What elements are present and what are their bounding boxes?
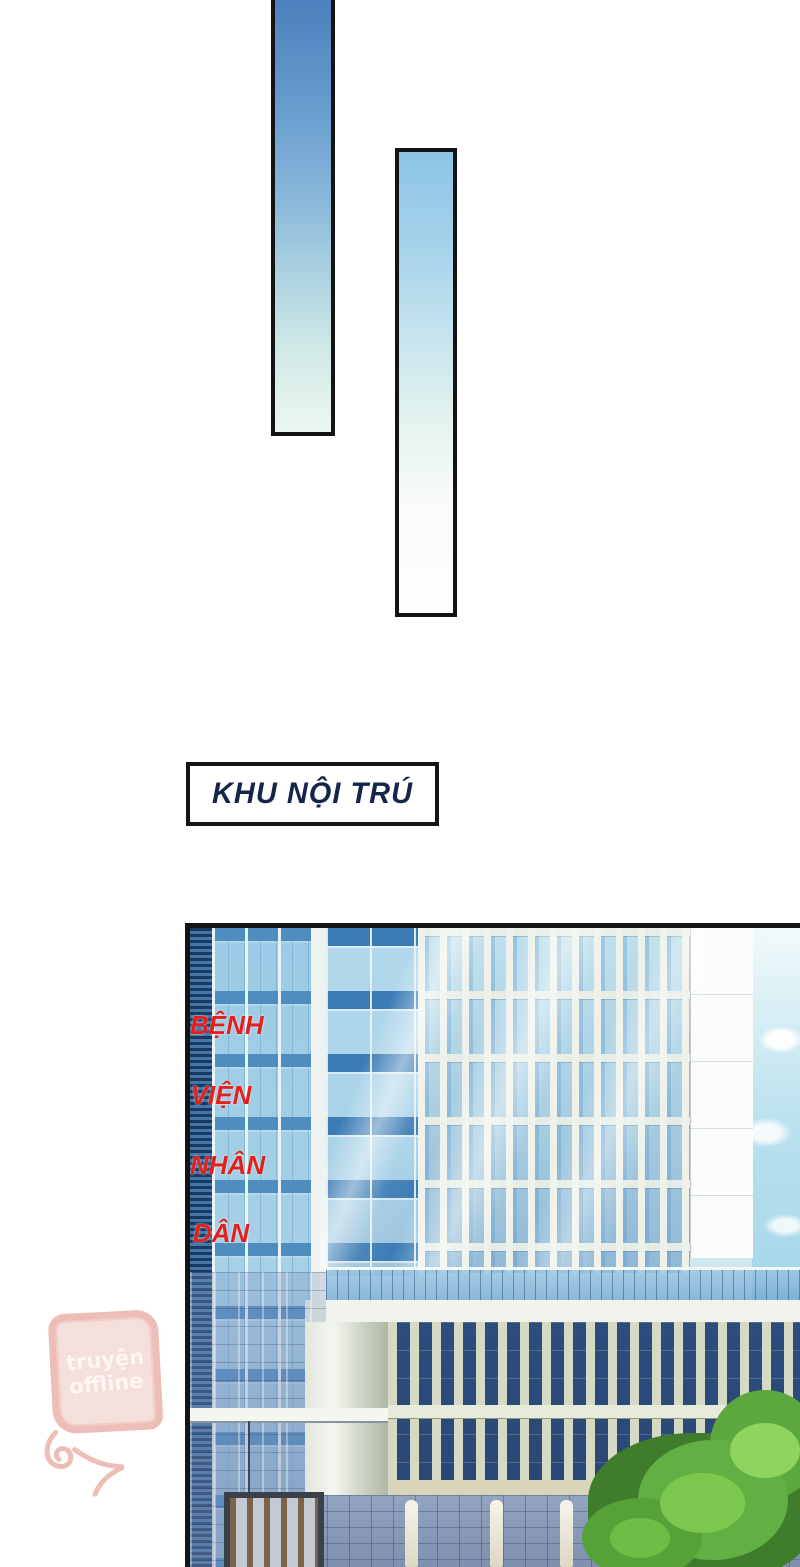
watermark-flourish-icon <box>39 1423 162 1499</box>
transition-bar-right <box>395 148 457 617</box>
entrance-canopy <box>190 1408 388 1423</box>
watermark-stamp: truyện offline <box>47 1309 163 1435</box>
hospital-sign-word-3: NHÂN <box>190 1150 252 1181</box>
transition-bar-left <box>271 0 335 436</box>
ground-column <box>490 1500 503 1567</box>
tree-highlight <box>730 1423 800 1478</box>
comic-page: KHU NỘI TRÚ truyện offline BỆNH VIỆN NHÂ… <box>0 0 800 1567</box>
hospital-sign-word-1: BỆNH <box>190 1010 252 1041</box>
tree-highlight <box>660 1473 745 1533</box>
hospital-sign-word-4: DÂN <box>190 1218 252 1249</box>
comic-panel: BỆNH VIỆN NHÂN DÂN <box>185 923 800 1567</box>
ground-column <box>405 1500 418 1567</box>
hospital-sign-word-2: VIỆN <box>190 1080 252 1111</box>
entrance-doors <box>224 1492 324 1567</box>
tree-highlight <box>610 1518 670 1558</box>
roofline-band <box>305 1300 800 1324</box>
watermark-line-2: offline <box>68 1369 144 1399</box>
caption-box: KHU NỘI TRÚ <box>186 762 439 826</box>
ground-column <box>560 1500 573 1567</box>
canopy-post <box>248 1421 250 1497</box>
caption-text: KHU NỘI TRÚ <box>212 777 413 811</box>
sky <box>752 928 800 1300</box>
watermark: truyện offline <box>34 1309 173 1491</box>
